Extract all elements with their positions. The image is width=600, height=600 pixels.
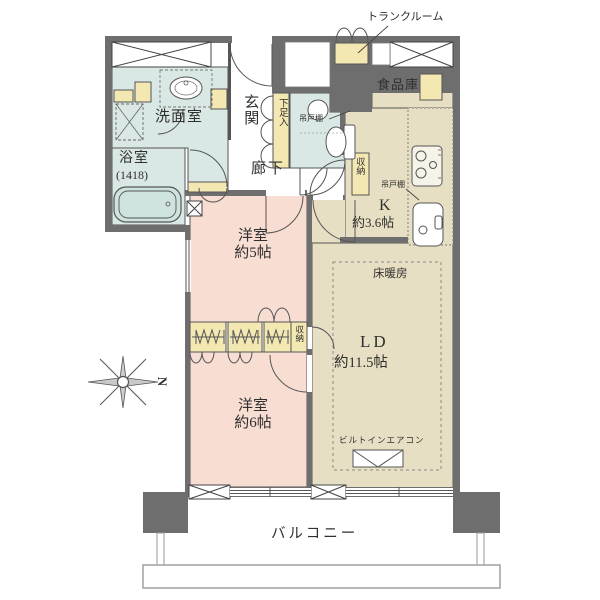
sink-icon <box>413 203 443 246</box>
ac-unit-icon <box>353 450 403 467</box>
pantry-shelf-box <box>420 74 442 100</box>
bedroom6-name: 洋室 <box>213 398 293 415</box>
entrance-door-arc <box>230 44 272 86</box>
kitchen-label: K <box>379 197 391 215</box>
builtin-ac-label: ビルトインエアコン <box>339 436 425 446</box>
bathtub-icon <box>114 187 181 222</box>
living-dining-size-label: 約11.5帖 <box>334 355 388 372</box>
floor-heating-label: 床暖房 <box>373 268 408 281</box>
trunk-room-box <box>335 43 368 64</box>
bedroom6-size: 約6帖 <box>213 415 293 432</box>
entrance-label: 玄関 <box>241 94 258 126</box>
bathroom-size-label: (1418) <box>116 169 148 183</box>
bedroom5-size: 約5帖 <box>213 245 293 262</box>
stove-icon <box>412 146 442 186</box>
kitchen-cupboard-label: 吊戸棚 <box>381 180 405 189</box>
living-dining-label: LD <box>360 332 389 352</box>
floorplan-drawing <box>0 0 600 600</box>
bathroom-label: 浴室 <box>119 151 149 167</box>
kitchen-counter <box>408 108 453 246</box>
bedroom6-label: 洋室 約6帖 <box>213 398 293 433</box>
balcony-label: バルコニー <box>271 526 358 543</box>
compass-icon <box>88 356 158 408</box>
pantry-label: 食品庫 <box>377 78 419 93</box>
trunk-room-label: トランクルーム <box>367 11 443 24</box>
kitchen-storage-label: 収納 <box>355 157 365 175</box>
toilet-cupboard-label: 吊戸棚 <box>299 114 323 123</box>
compass-north-label: N <box>154 377 169 386</box>
washroom-label: 洗面室 <box>155 109 203 126</box>
floorplan: トランクルーム 食品庫 洗面室 浴室 (1418) 玄関 下足入 吊戸棚 廊下 … <box>0 0 600 600</box>
closet-storage-label: 収納 <box>294 325 304 342</box>
hallway-label: 廊下 <box>251 161 285 178</box>
bedroom5-label: 洋室 約5帖 <box>213 228 293 263</box>
shoe-cabinet-label: 下足入 <box>276 98 287 127</box>
bedroom5-name: 洋室 <box>213 228 293 245</box>
shoe-cabinet-doors <box>261 96 273 168</box>
kitchen-size-label: 約3.6帖 <box>352 216 394 231</box>
